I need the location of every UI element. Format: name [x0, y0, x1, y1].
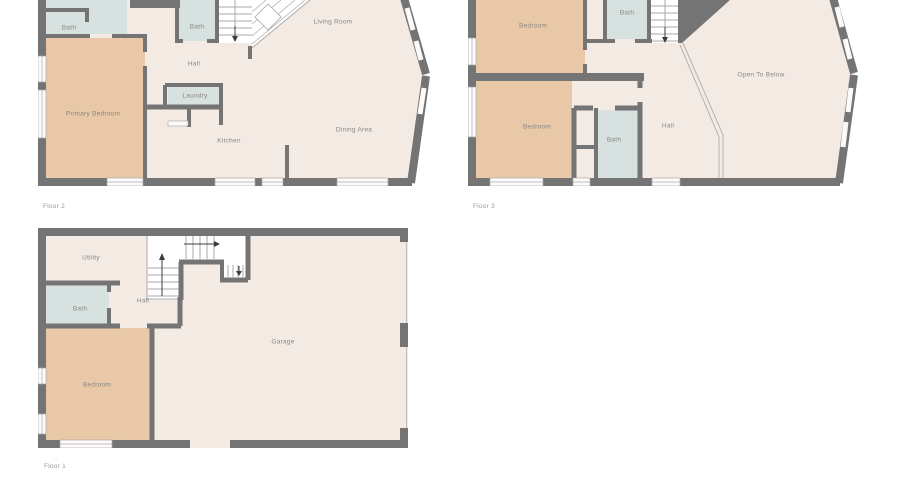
- floor-2-plan: Bath Bath Living Room Hall Laundry Prima…: [38, 0, 433, 186]
- room-label-bedroom: Bedroom: [519, 23, 547, 30]
- room-label-hall: Hall: [188, 61, 200, 68]
- room-label-bath: Bath: [62, 25, 76, 32]
- room-label-utility: Utility: [82, 255, 100, 262]
- room-label-living-room: Living Room: [314, 19, 353, 26]
- room-label-hall: Hall: [662, 123, 674, 130]
- room-label-bedroom: Bedroom: [83, 382, 111, 389]
- floorplan-canvas: Bath Bath Living Room Hall Laundry Prima…: [0, 0, 900, 500]
- room-label-dining-area: Dining Area: [336, 127, 372, 134]
- room-label-kitchen: Kitchen: [217, 138, 240, 145]
- room-label-primary-bedroom: Primary Bedroom: [66, 111, 120, 118]
- floor-2-caption: Floor 2: [43, 203, 65, 210]
- room-label-bath: Bath: [620, 10, 634, 17]
- room-label-garage: Garage: [271, 339, 294, 346]
- room-label-bath: Bath: [73, 306, 87, 313]
- floor-1-caption: Floor 1: [44, 463, 66, 470]
- floor-2-drawing: [38, 0, 433, 186]
- room-label-hall: Hall: [137, 298, 149, 305]
- room-label-bath: Bath: [607, 137, 621, 144]
- room-label-bedroom: Bedroom: [523, 124, 551, 131]
- floor-3-plan: Bedroom Bath Bedroom Bath Hall Open To B…: [468, 0, 862, 186]
- room-label-open-to-below: Open To Below: [737, 72, 784, 79]
- room-label-bath: Bath: [190, 24, 204, 31]
- room-label-laundry: Laundry: [182, 93, 207, 100]
- floor-3-caption: Floor 3: [473, 203, 495, 210]
- floor-1-plan: Utility Bath Hall Bedroom Garage: [38, 228, 408, 448]
